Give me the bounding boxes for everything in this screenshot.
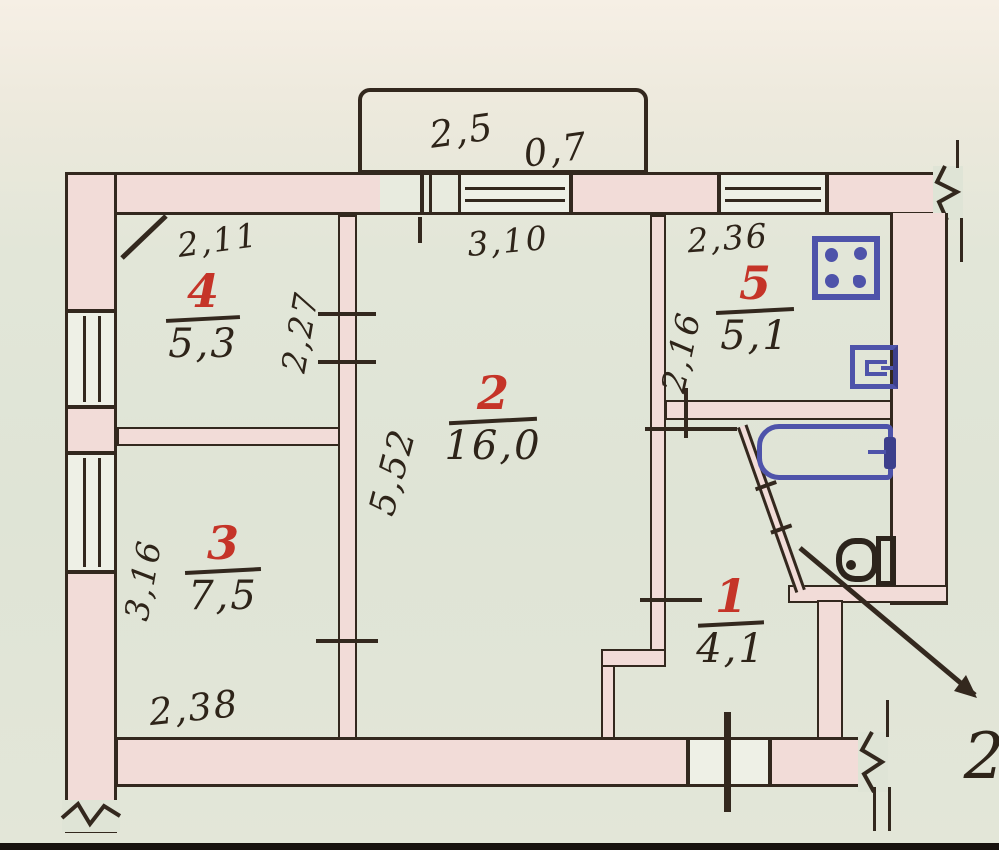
room-3-label: 3 7,5	[168, 522, 278, 616]
room-4-label: 4 5,3	[148, 270, 258, 364]
dim-tick	[316, 639, 378, 643]
room-2-area: 16,0	[438, 426, 548, 466]
room-5-number: 5	[700, 262, 810, 306]
wall-top-right-segment	[826, 172, 950, 215]
wall-top-mid-segment	[570, 172, 720, 215]
wall-hall-step-v	[601, 665, 615, 739]
window-pane-line	[98, 458, 101, 566]
window-pane-line	[83, 458, 86, 566]
room3-window-symbol	[65, 452, 117, 573]
dim-tick	[418, 217, 422, 243]
wall-break-symbol	[858, 732, 888, 792]
dim-balcony-depth: 0,7	[521, 124, 591, 176]
wall-room4-room2	[338, 215, 357, 739]
window-pane-line	[725, 199, 821, 202]
dim-tick	[960, 218, 963, 262]
room-3-area: 7,5	[168, 576, 278, 616]
wall-stub	[873, 787, 876, 831]
room-4-number: 4	[148, 270, 258, 314]
wall-room4-room3	[117, 427, 340, 446]
window-pane-line	[725, 187, 821, 190]
window-pane-line	[98, 316, 101, 402]
annotation-pointer-label: 2	[964, 720, 999, 794]
corner-diagonal-line	[118, 212, 170, 264]
dim-room2-width: 3,10	[466, 218, 551, 264]
dim-tick	[318, 360, 376, 364]
wall-bottom-left-segment	[115, 737, 689, 787]
dim-tick	[318, 312, 376, 316]
floor-plan-sketch: 2,5 0,7	[0, 0, 999, 850]
window-pane-line	[465, 187, 564, 190]
kitchen-window-symbol	[718, 172, 828, 215]
entrance-door-leaf	[724, 712, 731, 812]
balcony-door-jamb	[420, 172, 424, 215]
dim-tick	[956, 140, 959, 168]
window-pane-line	[83, 316, 86, 402]
wall-break-symbol	[933, 166, 963, 220]
wall-break-symbol	[62, 800, 120, 832]
room-2-label: 2 16,0	[438, 372, 548, 466]
dim-room3-width: 2,38	[147, 682, 241, 734]
room-1-area: 4,1	[676, 629, 786, 669]
wall-left-middle	[65, 406, 117, 454]
dim-room4-width: 2,11	[175, 215, 261, 265]
stove-icon	[812, 236, 880, 300]
dim-balcony-width: 2,5	[427, 105, 497, 157]
window-pane-line	[465, 199, 564, 202]
balcony-outline	[358, 88, 648, 174]
room2-window-symbol	[458, 172, 572, 215]
wall-left-upper	[65, 172, 117, 312]
room-1-number: 1	[676, 575, 786, 619]
dim-room2-depth: 5,52	[362, 424, 424, 520]
wall-room2-kitchen	[650, 215, 666, 651]
toilet-icon	[836, 536, 898, 588]
room4-window-symbol	[65, 310, 117, 408]
room-5-label: 5 5,1	[700, 262, 810, 356]
room-3-number: 3	[168, 522, 278, 566]
balcony-door-jamb	[429, 172, 432, 215]
dim-tick	[645, 427, 737, 431]
dim-room3-depth: 3,16	[117, 536, 170, 623]
dim-kitchen-width: 2,36	[686, 216, 770, 261]
room-5-area: 5,1	[700, 316, 810, 356]
wall-kitchen-bathroom	[665, 400, 892, 420]
room-1-label: 1 4,1	[676, 575, 786, 669]
door-leaf-tick	[755, 480, 777, 491]
room-2-number: 2	[438, 372, 548, 416]
room-4-area: 5,3	[148, 324, 258, 364]
balcony-door-opening	[380, 172, 458, 215]
bathtub-faucet-stem	[868, 450, 886, 454]
wall-left-lower	[65, 571, 117, 833]
photo-edge	[0, 843, 999, 850]
wall-stub	[888, 787, 891, 831]
sink-icon	[850, 345, 898, 389]
